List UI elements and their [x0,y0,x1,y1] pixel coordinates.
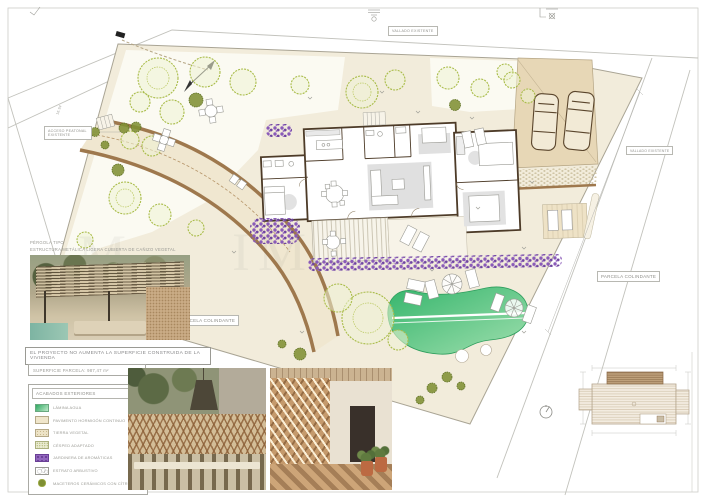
legend-item: CÉSPED ADAPTADO [35,441,142,449]
pergola-annotation-title: PÉRGOLA TIPO [30,240,176,247]
legend-item-label: LÁMINA AGUA [53,405,81,410]
shrub-swatch [35,467,49,475]
car [563,91,595,151]
photo-pot [361,461,373,476]
manhole-icon [368,10,380,21]
legend-item-label: TIERRA VEGETAL [53,430,89,435]
legend-item: PAVIMENTO HORMIGÓN CONTINUO [35,416,142,424]
car [531,93,559,151]
photo-floor-shadows [270,464,392,490]
aromatics-swatch [35,454,49,462]
legend-item-label: CÉSPED ADAPTADO [53,443,94,448]
pergola-photo [30,255,190,340]
citrus-swatch [35,479,49,487]
north-compass-icon [540,405,552,418]
photo-pot [375,457,387,472]
photo-ceramic-lattice [128,414,266,456]
neighbor-parcel-label-right: PARCELA COLINDANTE [597,271,660,282]
concrete-swatch [35,416,49,424]
lattice-corridor-photo [270,368,392,490]
fence-top-label: VALLADO EXISTENTE [388,26,438,36]
soil-swatch [35,429,49,437]
legend-item: ESTRATO ARBUSTIVO [35,467,142,475]
access-label-line1: ACCESO PEATONAL [48,129,87,133]
access-label: ACCESO PEATONAL EXISTENTE [44,126,92,140]
water-swatch [35,404,49,412]
legend-item: LÁMINA AGUA [35,404,142,412]
pergola-annotation: PÉRGOLA TIPO ESTRUCTURA METÁLICA LIGERA … [30,240,176,253]
legend-item: JARDINERA DE AROMÁTICAS [35,454,142,462]
lamp-icon [540,8,558,19]
legend-item-label: ESTRATO ARBUSTIVO [53,468,98,473]
legend-item: MACETEROS CERÁMICOS CON CÍTRICOS [35,479,142,487]
fence-right-label: VALLADO EXISTENTE [626,146,673,155]
dining-courtyard-photo [128,368,266,490]
svg-text:I: I [232,222,250,282]
legend-item-label: JARDINERA DE AROMÁTICAS [53,455,113,460]
photo-chairs [128,454,266,490]
project-note: EL PROYECTO NO AUMENTA LA SUPERFICIE CON… [25,347,211,365]
photo-pool [30,323,68,340]
photo-lamp-cord [203,368,204,381]
photo-stone-wall [146,287,190,340]
photo-sofa [74,321,146,334]
photo-table [134,462,260,469]
grass-swatch [35,441,49,449]
pergola-annotation-subtitle: ESTRUCTURA METÁLICA LIGERA CUBIERTA DE C… [30,247,176,254]
legend-item-label: PAVIMENTO HORMIGÓN CONTINUO [53,418,125,423]
site-plan-sheet: M I M VALLADO EXISTENTE ACCESO PEATONAL … [0,0,706,500]
legend-item: TIERRA VEGETAL [35,429,142,437]
roof-plan-inset [579,365,691,436]
access-label-line2: EXISTENTE [48,133,70,137]
interior-stair [363,112,386,126]
legend-item-label: MACETEROS CERÁMICOS CON CÍTRICOS [53,481,138,486]
svg-text:M: M [258,222,306,282]
utility-symbols [30,7,558,21]
